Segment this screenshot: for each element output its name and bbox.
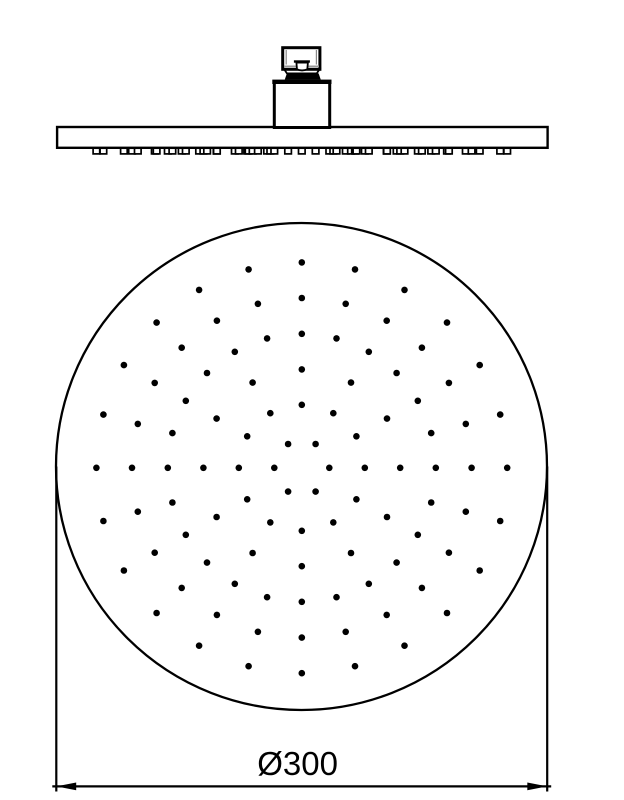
- svg-text:Ø300: Ø300: [257, 745, 338, 782]
